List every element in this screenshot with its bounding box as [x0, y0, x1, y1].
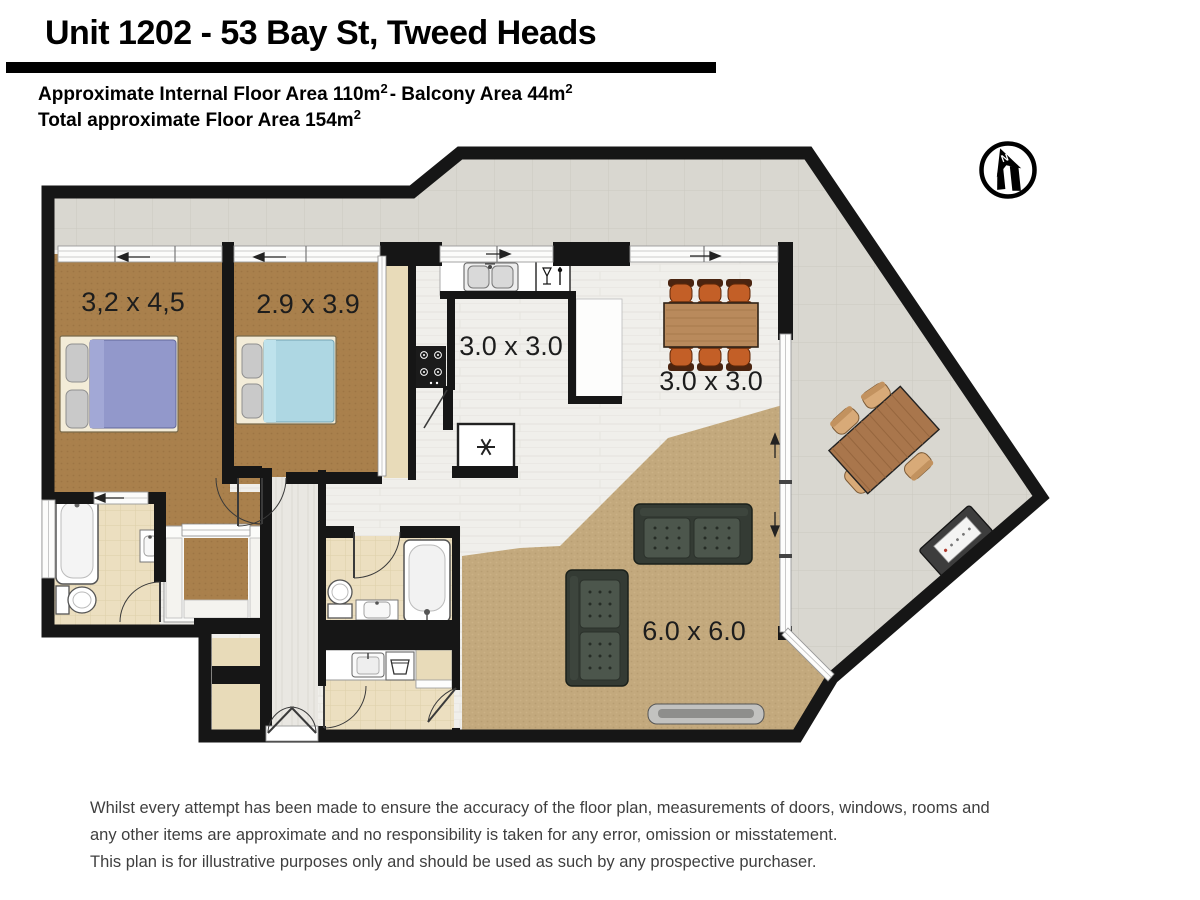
bed-icon-master — [60, 336, 178, 432]
toilet-icon-ensuite — [56, 586, 96, 614]
window-ensuite-left — [42, 500, 55, 578]
vanity-icon-bathroom — [356, 600, 398, 620]
wall — [286, 472, 382, 484]
room-label-bedroom-1: 3,2 x 4,5 — [81, 287, 185, 317]
tv-unit-icon — [648, 704, 764, 724]
entry-cupboard-2 — [212, 684, 261, 731]
disclaimer: Whilst every attempt has been made to en… — [90, 795, 990, 876]
kitchen-counter-edge — [440, 291, 576, 299]
wall — [194, 618, 268, 634]
floor-plan-drawing: 3,2 x 4,5 2.9 x 3.9 3.0 x 3.0 3.0 x 3.0 … — [0, 0, 1200, 900]
sofa-icon-left — [566, 570, 628, 686]
window-bedroom-1 — [58, 246, 222, 262]
wall — [408, 250, 416, 480]
wardrobe — [164, 524, 268, 622]
washing-machine-icon — [386, 652, 414, 680]
window-bedroom-2 — [234, 246, 380, 262]
wall — [400, 526, 460, 538]
room-label-bedroom-2: 2.9 x 3.9 — [256, 289, 360, 319]
wall — [224, 466, 262, 478]
wardrobe-floor — [184, 538, 248, 600]
wall — [553, 242, 630, 266]
kitchen-counter-edge — [568, 396, 622, 404]
disclaimer-line: This plan is for illustrative purposes o… — [90, 849, 990, 876]
dishwasher-icon — [536, 261, 570, 296]
entry-hall-floor — [266, 477, 318, 735]
robe-sliding-track — [378, 256, 386, 476]
room-label-kitchen: 3.0 x 3.0 — [459, 331, 563, 361]
sofa-icon-top — [634, 504, 752, 564]
kitchen-sink-icon — [464, 263, 518, 291]
fridge-icon — [458, 424, 514, 470]
cooktop-icon — [416, 346, 446, 388]
wardrobe-shelf-bottom — [184, 600, 248, 618]
floor-plan-page: Unit 1202 - 53 Bay St, Tweed Heads Appro… — [0, 0, 1200, 900]
wall — [154, 492, 166, 582]
kitchen-island — [576, 299, 622, 398]
wall — [452, 728, 460, 740]
disclaimer-line: any other items are approximate and no r… — [90, 822, 990, 849]
room-label-dining: 3.0 x 3.0 — [659, 366, 763, 396]
bath-icon-ensuite — [56, 496, 98, 584]
disclaimer-line: Whilst every attempt has been made to en… — [90, 795, 990, 822]
bath-icon-bathroom — [404, 540, 450, 622]
dining-table-icon — [664, 279, 758, 371]
wall — [212, 666, 261, 684]
laundry-sink-icon — [352, 653, 384, 677]
bedroom-2-robe-floor — [384, 254, 412, 478]
wardrobe-shelf-left — [166, 538, 182, 618]
kitchen-counter-edge — [447, 291, 455, 390]
north-arrow-icon: N — [982, 144, 1035, 199]
wall — [318, 470, 326, 686]
wall — [778, 242, 793, 340]
kitchen-counter-edge — [568, 291, 576, 404]
room-label-living: 6.0 x 6.0 — [642, 616, 746, 646]
entry-cupboard-1 — [212, 638, 261, 666]
wall — [222, 242, 234, 484]
wall — [318, 526, 354, 538]
balcony-sliding-door — [779, 334, 792, 632]
wall — [318, 620, 460, 650]
wall — [452, 466, 518, 478]
toilet-icon-bathroom — [328, 580, 352, 618]
bed-icon-second — [236, 336, 336, 424]
wall — [452, 526, 460, 690]
window-dining — [630, 246, 778, 262]
laundry-cupboard — [416, 650, 452, 688]
